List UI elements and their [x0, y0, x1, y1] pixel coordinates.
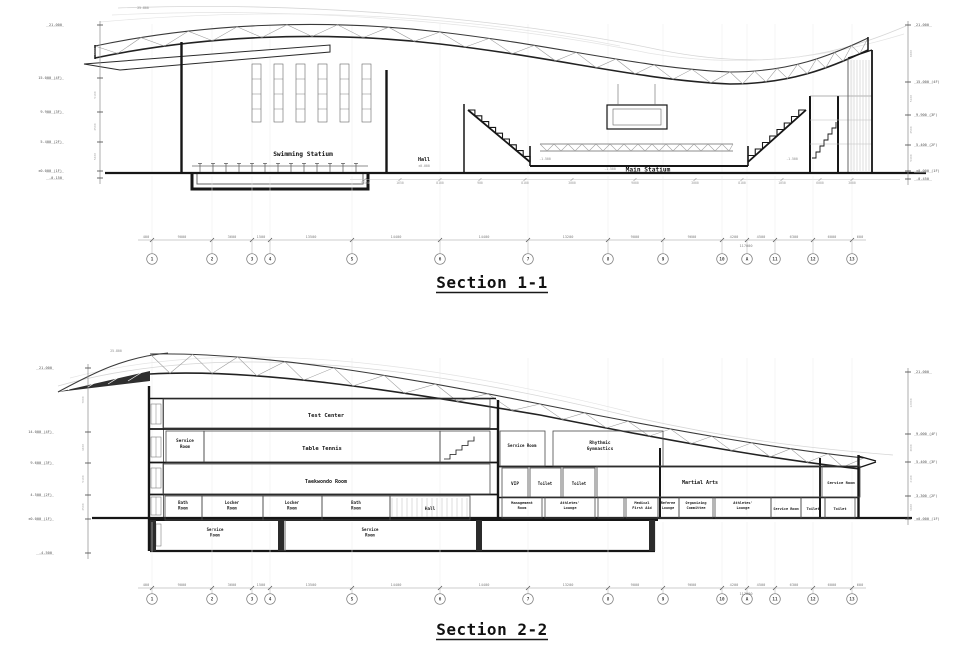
grid-bubble-label: A	[746, 257, 749, 263]
grid-bubble-label: 3	[251, 597, 254, 603]
room-label: Referee	[661, 501, 675, 505]
elevation-label: 14.000 (4F)	[28, 430, 52, 434]
grid-bubble-label: 11	[772, 257, 778, 263]
dimension-label: 9000	[631, 583, 640, 587]
ruler-segment-dim: 3300	[909, 504, 913, 511]
rake-level-label: -1.500	[539, 157, 551, 161]
dimension-label: 1500	[257, 583, 266, 587]
grid-bubble-label: 10	[719, 257, 725, 263]
room-label: Committee	[687, 506, 706, 510]
sub-dimension-label: 6000	[816, 181, 824, 185]
room-label: Room	[210, 533, 220, 538]
rake-left	[468, 110, 530, 162]
dimension-label: 3600	[228, 235, 237, 239]
room-label: Room	[518, 506, 527, 510]
ruler-segment-dim: 6000	[93, 48, 97, 55]
section-2-2-title: Section 2-2	[436, 620, 547, 639]
room-label: First Aid	[632, 506, 651, 510]
grid-bubble-label: 5	[351, 597, 354, 603]
ruler-segment-dim: 2100	[909, 475, 913, 482]
elevation-label: 5.400 (2F)	[40, 140, 62, 144]
dimension-label: 13500	[306, 235, 317, 239]
sub-dimension-label: 3000	[848, 181, 856, 185]
walkway-truss	[540, 144, 733, 151]
dimension-label: 6300	[790, 583, 799, 587]
dimension-label: 4500	[757, 235, 766, 239]
room	[598, 497, 624, 518]
room-label: Organizing	[685, 501, 706, 505]
dimension-label: 4200	[730, 235, 739, 239]
grid-bubble-label: 12	[810, 597, 816, 603]
room-label: Martial Arts	[682, 480, 718, 486]
ruler-segment-dim: 4500	[93, 123, 97, 130]
roof-inner-curve	[100, 14, 620, 46]
grid-bubble-label: 3	[251, 257, 254, 263]
roof-overhang-wedge	[58, 371, 150, 392]
dimension-label: 14400	[479, 235, 490, 239]
basement-column	[278, 520, 284, 551]
left-canopy	[84, 45, 330, 70]
window-strip	[318, 64, 327, 122]
elevation-label: 21.000	[39, 366, 52, 370]
window-strip	[274, 64, 283, 122]
swimming-stadium-label: Swimming Statium	[273, 150, 333, 158]
grid-bubble-label: 10	[719, 597, 725, 603]
grid-bubble-label: 6	[439, 597, 442, 603]
sub-dimension-label: 1050	[778, 181, 786, 185]
grid-bubble-label: 1	[151, 257, 154, 263]
sub-dimension-label: 3000	[691, 181, 699, 185]
room-label: Service Room	[773, 507, 798, 511]
elevation-label: ±0.000 (1F)	[916, 169, 940, 173]
room-label: Bath	[351, 500, 361, 505]
dimension-label: 4500	[757, 583, 766, 587]
room-label: Table Tennis	[302, 446, 342, 452]
ruler-segment-dim: 12000	[909, 398, 913, 407]
grid-bubble-label: 7	[527, 597, 530, 603]
dimension-label: 400	[143, 235, 150, 239]
dimension-label: 14400	[479, 583, 490, 587]
elevation-label: ±0.000 (1F)	[38, 169, 62, 173]
window-strip	[296, 64, 305, 122]
truss-web	[150, 354, 864, 467]
hall-label: Hall	[418, 157, 430, 163]
sub-dimension-label: 3000	[568, 181, 576, 185]
sub-dimension-label: 8100	[521, 181, 529, 185]
grid-bubble-label: A	[746, 597, 749, 603]
room-label: Toilet	[572, 481, 587, 486]
elevation-label: 9.000 (4F)	[916, 432, 938, 436]
dimension-label: 9000	[631, 235, 640, 239]
elevation-label: 9.900 (3F)	[40, 110, 62, 114]
sub-dimension-label: 1650	[396, 181, 404, 185]
hall-level-label: ±0.000	[418, 164, 430, 168]
room-label: VIP	[511, 481, 519, 487]
room-label: Service	[176, 438, 194, 443]
dimension-label: 400	[143, 583, 150, 587]
room-label: Bath	[178, 500, 188, 505]
elevation-label: -0.150	[49, 176, 62, 180]
dimension-label: 9600	[688, 583, 697, 587]
room-label: Service Room	[827, 480, 855, 485]
room-label: Rhythmic	[589, 440, 611, 446]
grid-bubble-label: 9	[662, 597, 665, 603]
grid-bubble-label: 1	[151, 597, 154, 603]
rake-level-label: -1.500	[786, 157, 798, 161]
elevation-label: 5.400 (3F)	[916, 460, 938, 464]
roof-peak-level: 25.800	[110, 349, 122, 353]
room-label: Room	[351, 506, 361, 511]
room-label: Gymnastics	[587, 446, 614, 452]
grid-bubble-label: 8	[607, 597, 610, 603]
elevation-label: 21.000	[49, 23, 62, 27]
ruler-segment-dim: 6000	[909, 50, 913, 57]
stair-steps	[812, 122, 836, 158]
room-label: Athletes'	[733, 501, 752, 505]
scoreboard	[607, 105, 667, 129]
grid-bubble-label: 11	[772, 597, 778, 603]
grid-bubble-label: 4	[269, 257, 272, 263]
ruler-segment-dim: 5100	[93, 91, 97, 98]
room-label: Toilet	[834, 507, 847, 511]
dimension-label: 9000	[178, 583, 187, 587]
elevation-ruler-right: 21.0009.000 (4F)5.400 (3F)3.300 (2F)±0.0…	[905, 368, 940, 525]
dimension-label: 6300	[790, 235, 799, 239]
ruler-segment-dim: 5400	[909, 154, 913, 161]
grid-bubble-label: 9	[662, 257, 665, 263]
dimension-label: 6000	[828, 583, 837, 587]
basement-column	[476, 520, 482, 551]
elevation-label: -0.450	[916, 177, 929, 181]
elevation-label: 4.500 (2F)	[30, 493, 52, 497]
dimension-label: 13500	[306, 583, 317, 587]
elevation-label: 15.000 (4F)	[916, 80, 940, 84]
ruler-segment-dim: 4400	[81, 444, 85, 451]
room-label: Locker	[225, 500, 240, 505]
grid-bubble-label: 4	[269, 597, 272, 603]
grid-bubble-label: 12	[810, 257, 816, 263]
architectural-sections-drawing: Swimming Statium Hall ±0.000 Main Statiu…	[0, 0, 960, 651]
room-label: Athletes'	[560, 501, 579, 505]
grid-bubble-label: 6	[439, 257, 442, 263]
basement-column	[649, 520, 655, 551]
grid-and-dimensions: 12345678910A1112134009000360015001350014…	[138, 522, 866, 604]
dimension-label: 13200	[563, 583, 574, 587]
sub-dimension-label: 8100	[436, 181, 444, 185]
room-label: Hall	[425, 506, 436, 512]
dimension-label: 14400	[391, 235, 402, 239]
elevation-ruler-left: 21.00014.000 (4F)9.600 (3F)4.500 (2F)±0.…	[28, 364, 91, 559]
dimension-label: 600	[857, 235, 864, 239]
room-label: Room	[178, 506, 188, 511]
room-label: Management	[511, 501, 533, 505]
dimension-label: 1500	[257, 235, 266, 239]
ruler-segment-dim: 5400	[93, 153, 97, 160]
elevation-label: 21.000	[916, 23, 929, 27]
room-label: Medical	[634, 501, 649, 505]
elevation-label: ±0.000 (1F)	[28, 517, 52, 521]
room-label: Service	[362, 527, 379, 532]
room	[500, 431, 545, 466]
grid-bubble-label: 2	[211, 257, 214, 263]
window-strip	[340, 64, 349, 122]
pool-pit	[192, 173, 368, 189]
elevation-label: 3.300 (2F)	[916, 494, 938, 498]
main-level-label: -1.500	[604, 167, 616, 171]
dimension-label: 13200	[563, 235, 574, 239]
section-1-1-title: Section 1-1	[436, 273, 547, 292]
elevation-label: 21.000	[916, 370, 929, 374]
sub-dimension-label: 9000	[631, 181, 639, 185]
ruler-segment-dim: 5100	[909, 95, 913, 102]
ruler-segment-dim: 5100	[81, 475, 85, 482]
room-label: Lounge	[662, 506, 674, 510]
ruler-segment-dim: 4500	[909, 126, 913, 133]
truss-bottom-chord	[150, 373, 860, 469]
room-label: Taekwondo Room	[305, 479, 347, 485]
roof-skin-curve-right	[648, 34, 904, 61]
section-2-2: Test CenterServiceRoomTable TennisTaekwo…	[28, 349, 940, 604]
grid-lines-faint	[152, 24, 852, 172]
grid-bubble-label: 2	[211, 597, 214, 603]
ruler-segment-dim: 4500	[81, 503, 85, 510]
elevation-label: 15.000 (4F)	[38, 76, 62, 80]
sub-dimension-label: 900	[477, 181, 483, 185]
grid-bubble-label: 13	[849, 257, 855, 263]
room-label: Lounge	[737, 506, 751, 510]
pool-liner	[197, 173, 363, 184]
room	[440, 431, 490, 462]
drawing-sheet: Swimming Statium Hall ±0.000 Main Statiu…	[0, 0, 960, 651]
grid-bubble-label: 13	[849, 597, 855, 603]
dimension-label: 600	[857, 583, 864, 587]
total-dimension: 117000	[740, 244, 753, 248]
roof-truss	[58, 353, 864, 469]
room-label: Room	[180, 444, 191, 449]
ruler-segment-dim: 7000	[81, 396, 85, 403]
elevation-label: -4.500	[39, 551, 52, 555]
room-label: Room	[365, 533, 375, 538]
elevation-ruler-right: 21.00015.000 (4F)9.900 (3F)5.400 (2F)±0.…	[905, 21, 940, 185]
sub-dimension-label: 8100	[738, 181, 746, 185]
elevation-label: ±0.000 (1F)	[916, 517, 940, 521]
dimension-label: 9600	[688, 235, 697, 239]
dimension-label: 9000	[178, 235, 187, 239]
roof-peak-level: 25.800	[137, 6, 149, 10]
section-2-detail	[150, 404, 655, 551]
window-strip	[252, 64, 261, 122]
dimension-label: 4200	[730, 583, 739, 587]
total-dimension: 117000	[740, 592, 753, 596]
room-label: Toilet	[807, 507, 820, 511]
stair-steps	[444, 437, 474, 460]
room-label: Room	[227, 506, 237, 511]
elevation-label: 9.900 (3F)	[916, 113, 938, 117]
dimension-label: 3600	[228, 583, 237, 587]
main-stadium-label: Main Statium	[626, 166, 671, 174]
ruler-segment-dim: 3600	[909, 444, 913, 451]
elevation-label: 9.600 (3F)	[30, 461, 52, 465]
sub-dimension-label: 10500	[360, 181, 369, 185]
dimension-label: 14400	[391, 583, 402, 587]
grid-bubble-label: 7	[527, 257, 530, 263]
rooms: Test CenterServiceRoomTable TennisTaekwo…	[163, 399, 860, 538]
elevation-ruler-left: 21.00015.000 (4F)9.900 (3F)5.400 (2F)±0.…	[38, 21, 103, 184]
dimension-label: 6000	[828, 235, 837, 239]
grid-bubble-label: 8	[607, 257, 610, 263]
scoreboard-screen	[613, 109, 661, 125]
grid-bubble-label: 5	[351, 257, 354, 263]
basement-column	[150, 520, 156, 551]
room-label: Service Room	[508, 443, 537, 448]
window-strip	[362, 64, 371, 122]
room-label: Locker	[285, 500, 300, 505]
room-label: Toilet	[538, 481, 553, 486]
room-label: Service	[207, 527, 224, 532]
elevation-label: 5.400 (2F)	[916, 143, 938, 147]
room-label: Test Center	[308, 413, 345, 419]
room-label: Room	[287, 506, 297, 511]
curtain-wall-cap	[848, 50, 872, 58]
room-label: Lounge	[564, 506, 578, 510]
section-1-1: Swimming Statium Hall ±0.000 Main Statiu…	[38, 6, 940, 264]
truss-top-chord	[95, 24, 868, 72]
